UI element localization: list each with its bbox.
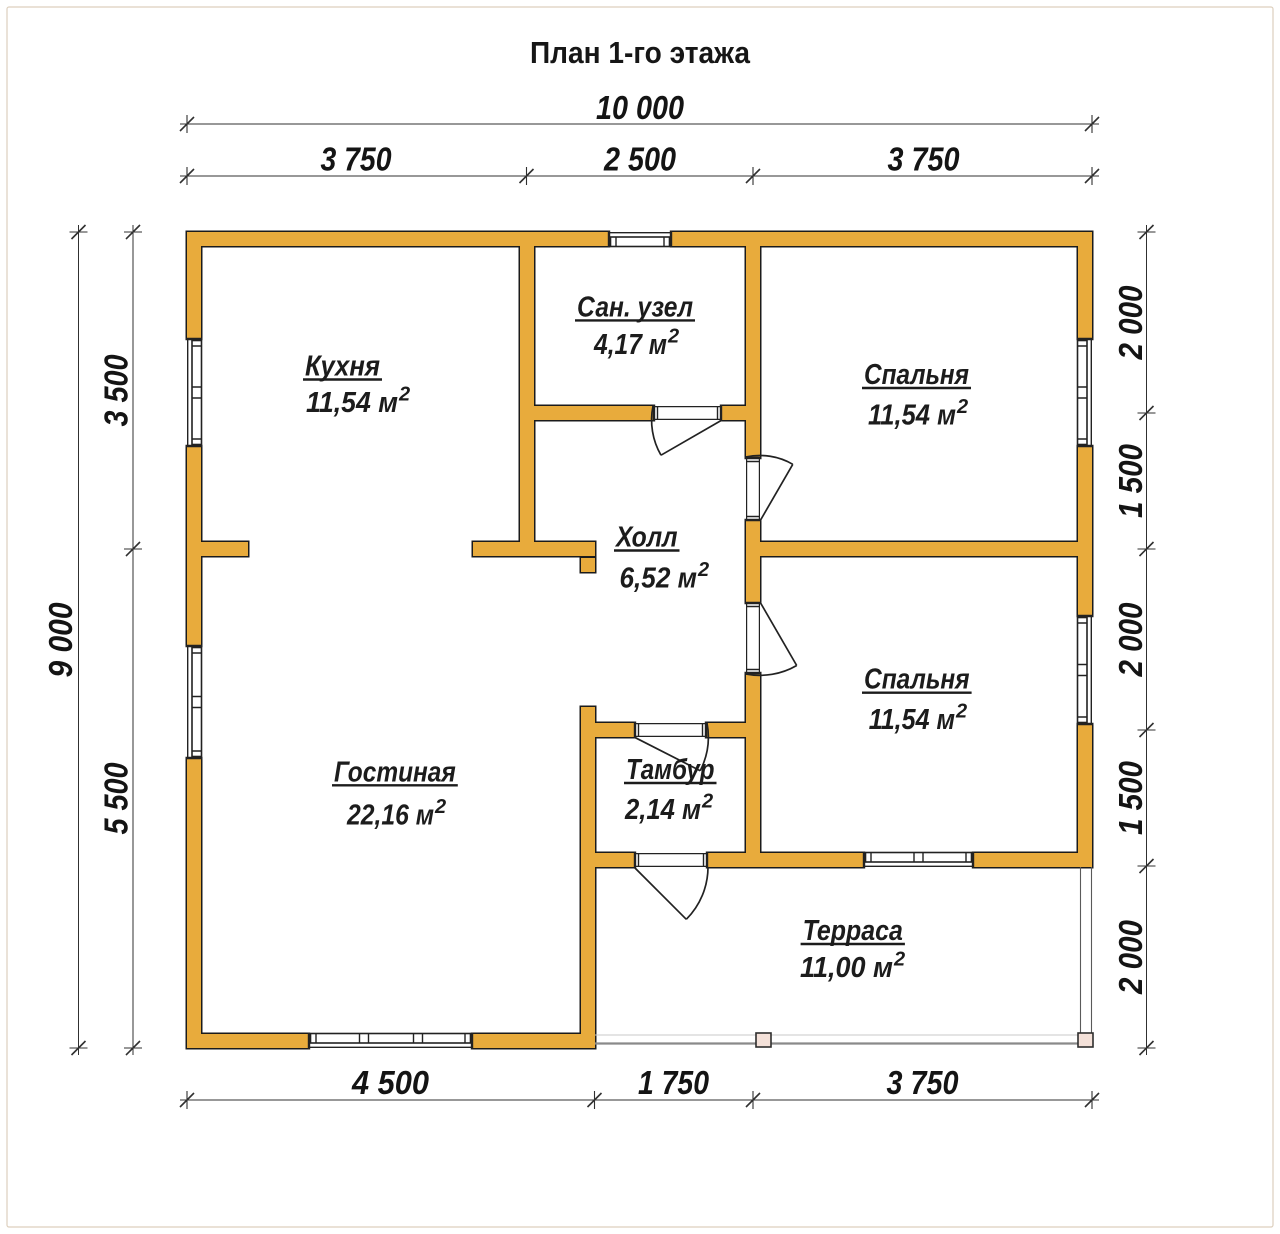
svg-text:11,54 м: 11,54 м — [869, 704, 955, 736]
svg-text:6,52 м: 6,52 м — [620, 563, 698, 595]
svg-text:1 500: 1 500 — [1112, 443, 1149, 518]
svg-text:3 500: 3 500 — [98, 354, 135, 427]
svg-text:1 750: 1 750 — [638, 1064, 710, 1101]
svg-text:Тамбур: Тамбур — [626, 754, 715, 786]
svg-text:11,54 м: 11,54 м — [306, 387, 398, 419]
svg-text:Холл: Холл — [614, 522, 677, 554]
svg-text:2 500: 2 500 — [603, 141, 676, 178]
svg-text:Сан. узел: Сан. узел — [577, 291, 693, 323]
svg-text:9 000: 9 000 — [42, 602, 79, 678]
svg-text:Кухня: Кухня — [305, 351, 380, 383]
svg-text:3 750: 3 750 — [888, 141, 961, 178]
svg-text:4 500: 4 500 — [351, 1064, 430, 1101]
svg-text:5 500: 5 500 — [98, 762, 135, 835]
svg-text:1 500: 1 500 — [1112, 760, 1149, 835]
svg-text:10 000: 10 000 — [596, 89, 685, 126]
svg-text:2: 2 — [893, 949, 905, 971]
svg-text:2: 2 — [398, 384, 410, 406]
svg-text:2: 2 — [701, 791, 713, 813]
svg-text:4,17 м: 4,17 м — [593, 329, 667, 361]
svg-text:2: 2 — [667, 326, 679, 348]
svg-text:2,14 м: 2,14 м — [624, 794, 701, 826]
svg-text:2: 2 — [956, 396, 968, 418]
svg-text:2: 2 — [697, 559, 709, 581]
svg-text:Спальня: Спальня — [864, 664, 970, 696]
svg-text:2: 2 — [955, 701, 967, 723]
svg-text:2 000: 2 000 — [1112, 285, 1149, 360]
svg-text:22,16 м: 22,16 м — [346, 800, 434, 832]
svg-text:11,00 м: 11,00 м — [800, 952, 893, 984]
svg-text:Спальня: Спальня — [864, 359, 969, 391]
svg-text:2 000: 2 000 — [1112, 602, 1149, 677]
svg-text:11,54 м: 11,54 м — [868, 400, 956, 432]
svg-text:2: 2 — [434, 796, 446, 818]
svg-text:Гостиная: Гостиная — [334, 756, 456, 788]
svg-text:3 750: 3 750 — [887, 1064, 960, 1101]
svg-text:Терраса: Терраса — [803, 915, 903, 947]
svg-text:2 000: 2 000 — [1112, 919, 1149, 994]
svg-text:План 1-го этажа: План 1-го этажа — [530, 35, 751, 70]
svg-text:3 750: 3 750 — [321, 141, 393, 178]
